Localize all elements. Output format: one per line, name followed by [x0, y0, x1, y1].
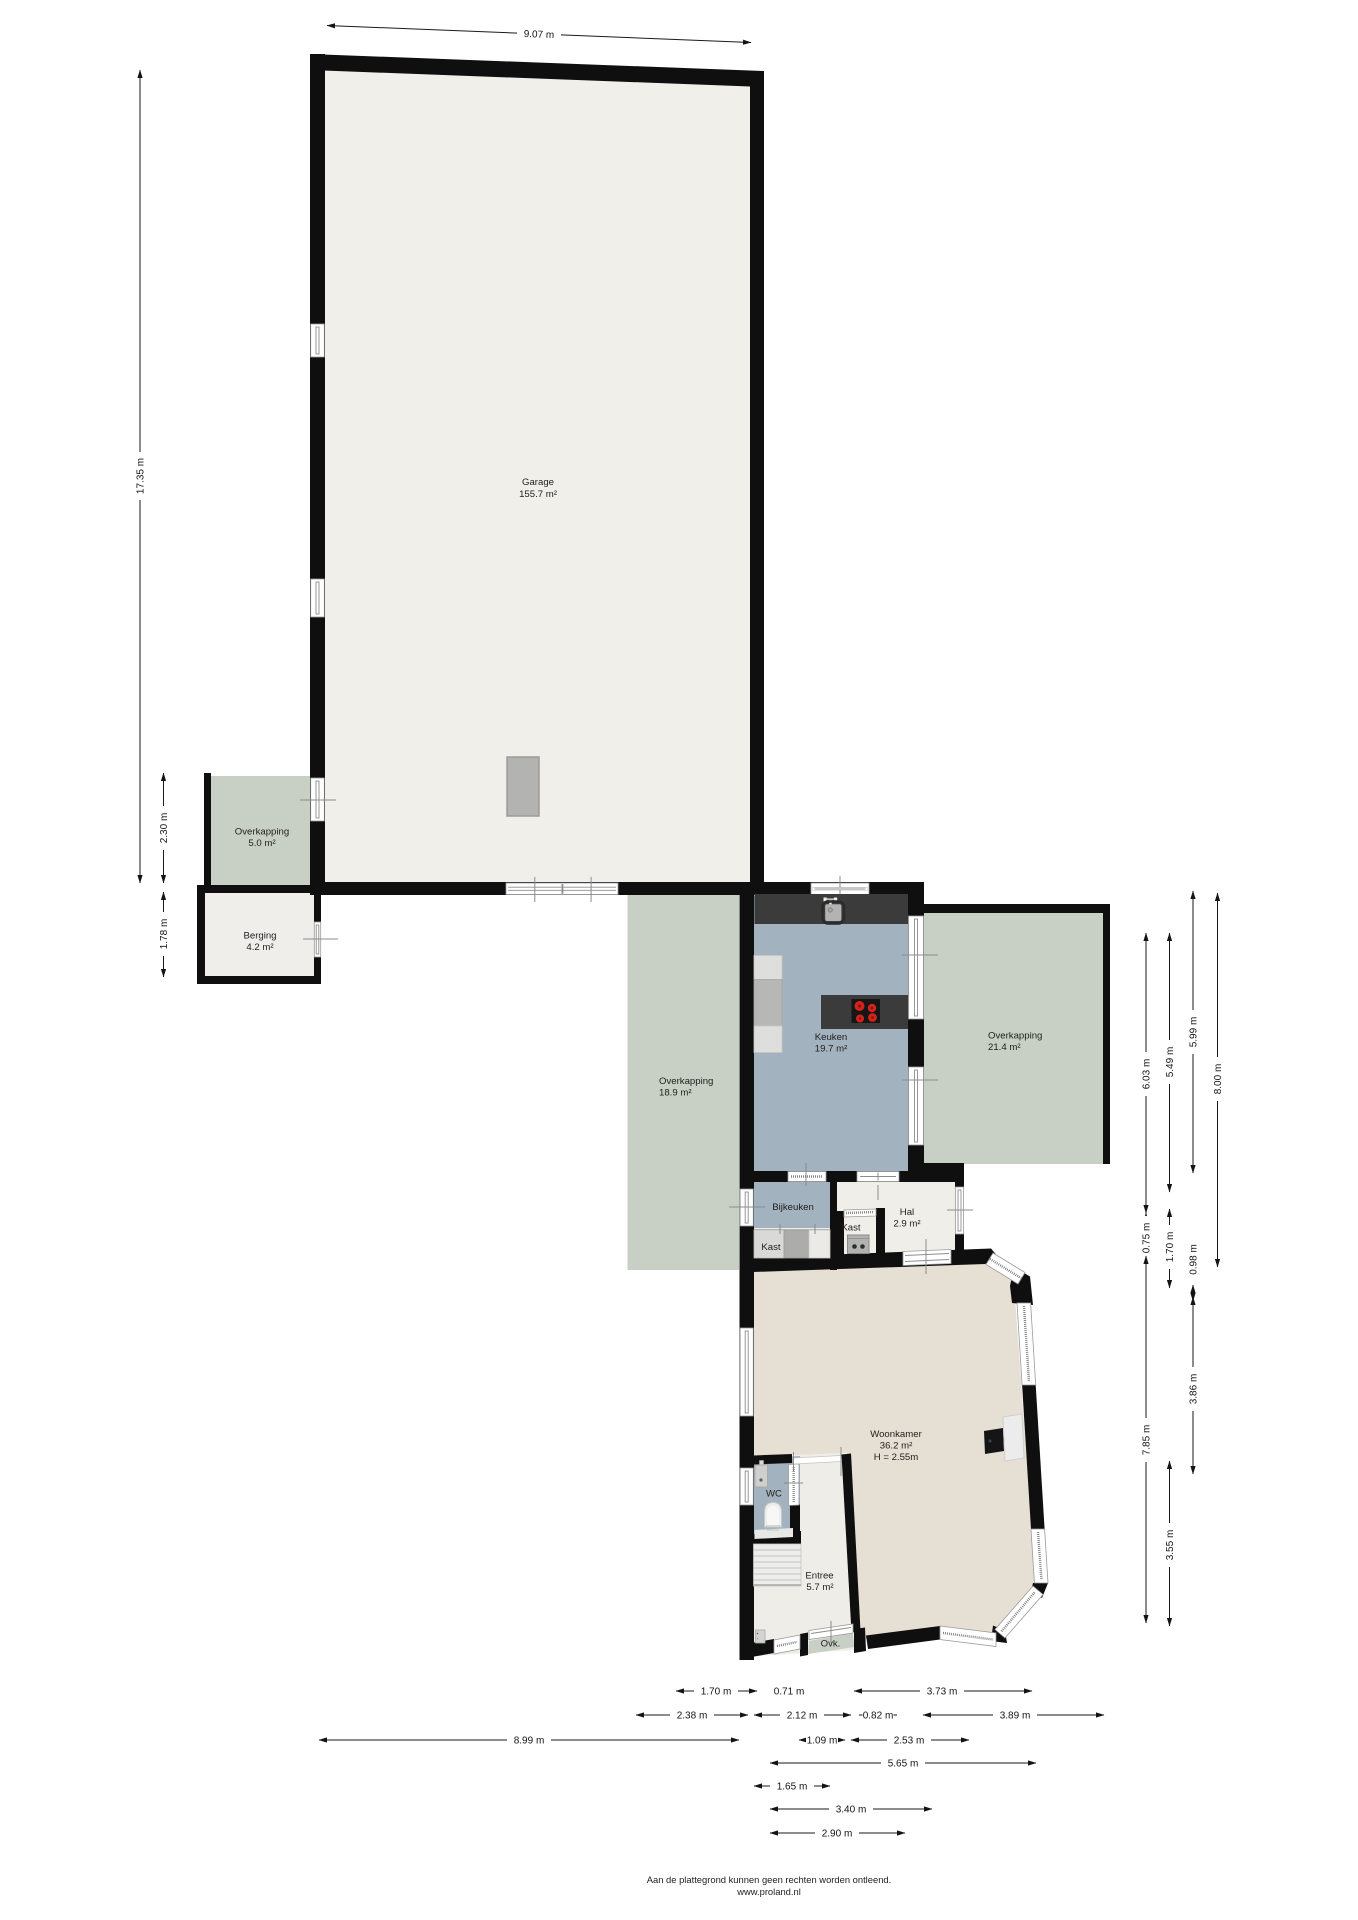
- svg-text:155.7 m²: 155.7 m²: [519, 489, 558, 500]
- svg-text:5.7 m²: 5.7 m²: [806, 1582, 834, 1593]
- svg-text:2.90 m: 2.90 m: [822, 1829, 853, 1840]
- svg-text:2.53 m: 2.53 m: [894, 1736, 925, 1747]
- svg-text:1.78 m: 1.78 m: [159, 919, 170, 950]
- svg-text:0.71 m: 0.71 m: [774, 1687, 805, 1698]
- svg-text:19.7 m²: 19.7 m²: [815, 1044, 848, 1055]
- svg-text:Overkapping: Overkapping: [659, 1076, 713, 1087]
- svg-text:18.9 m²: 18.9 m²: [659, 1088, 692, 1099]
- svg-text:36.2 m²: 36.2 m²: [880, 1441, 913, 1452]
- svg-text:9.07 m: 9.07 m: [523, 29, 554, 41]
- svg-text:Kast: Kast: [761, 1242, 781, 1253]
- svg-text:3.89 m: 3.89 m: [1000, 1711, 1031, 1722]
- svg-text:1.70 m: 1.70 m: [1165, 1232, 1176, 1263]
- svg-text:2.12 m: 2.12 m: [787, 1711, 818, 1722]
- svg-text:Ovk.: Ovk.: [821, 1639, 841, 1650]
- svg-text:Woonkamer: Woonkamer: [870, 1429, 922, 1440]
- svg-text:6.03 m: 6.03 m: [1142, 1059, 1153, 1090]
- svg-text:Hal: Hal: [900, 1207, 914, 1218]
- svg-text:Overkapping: Overkapping: [988, 1031, 1042, 1042]
- svg-text:0.98 m: 0.98 m: [1189, 1244, 1200, 1275]
- svg-text:Keuken: Keuken: [815, 1032, 848, 1043]
- svg-text:1.65 m: 1.65 m: [777, 1782, 808, 1793]
- svg-text:WC: WC: [766, 1489, 782, 1500]
- svg-text:5.49 m: 5.49 m: [1165, 1047, 1176, 1078]
- svg-text:Berging: Berging: [243, 931, 276, 942]
- svg-text:3.55 m: 3.55 m: [1165, 1530, 1176, 1561]
- svg-text:Overkapping: Overkapping: [235, 827, 289, 838]
- svg-text:H = 2.55m: H = 2.55m: [874, 1452, 919, 1463]
- svg-text:Aan de plattegrond kunnen geen: Aan de plattegrond kunnen geen rechten w…: [647, 1874, 891, 1885]
- svg-text:2.9 m²: 2.9 m²: [893, 1219, 921, 1230]
- svg-text:8.99 m: 8.99 m: [514, 1736, 545, 1747]
- svg-text:Garage: Garage: [522, 477, 554, 488]
- svg-text:3.86 m: 3.86 m: [1189, 1374, 1200, 1405]
- svg-text:Bijkeuken: Bijkeuken: [772, 1202, 814, 1213]
- svg-text:1.70 m: 1.70 m: [701, 1687, 732, 1698]
- svg-text:21.4 m²: 21.4 m²: [988, 1042, 1021, 1053]
- svg-text:3.73 m: 3.73 m: [927, 1687, 958, 1698]
- svg-text:8.00 m: 8.00 m: [1213, 1064, 1224, 1095]
- svg-text:5.0 m²: 5.0 m²: [248, 838, 276, 849]
- svg-text:1.09 m: 1.09 m: [807, 1736, 838, 1747]
- svg-text:Kast: Kast: [841, 1223, 861, 1234]
- svg-text:Entree: Entree: [805, 1571, 833, 1582]
- svg-text:3.40 m: 3.40 m: [836, 1805, 867, 1816]
- svg-text:17.35 m: 17.35 m: [136, 458, 147, 494]
- svg-text:www.proland.nl: www.proland.nl: [736, 1886, 801, 1897]
- svg-text:4.2 m²: 4.2 m²: [246, 942, 274, 953]
- svg-text:5.65 m: 5.65 m: [888, 1759, 919, 1770]
- svg-text:0.75 m: 0.75 m: [1142, 1223, 1153, 1254]
- svg-text:2.30 m: 2.30 m: [159, 813, 170, 844]
- svg-text:7.85 m: 7.85 m: [1142, 1425, 1153, 1456]
- svg-text:5.99 m: 5.99 m: [1189, 1017, 1200, 1048]
- svg-text:2.38 m: 2.38 m: [677, 1711, 708, 1722]
- svg-text:0.82 m: 0.82 m: [863, 1711, 894, 1722]
